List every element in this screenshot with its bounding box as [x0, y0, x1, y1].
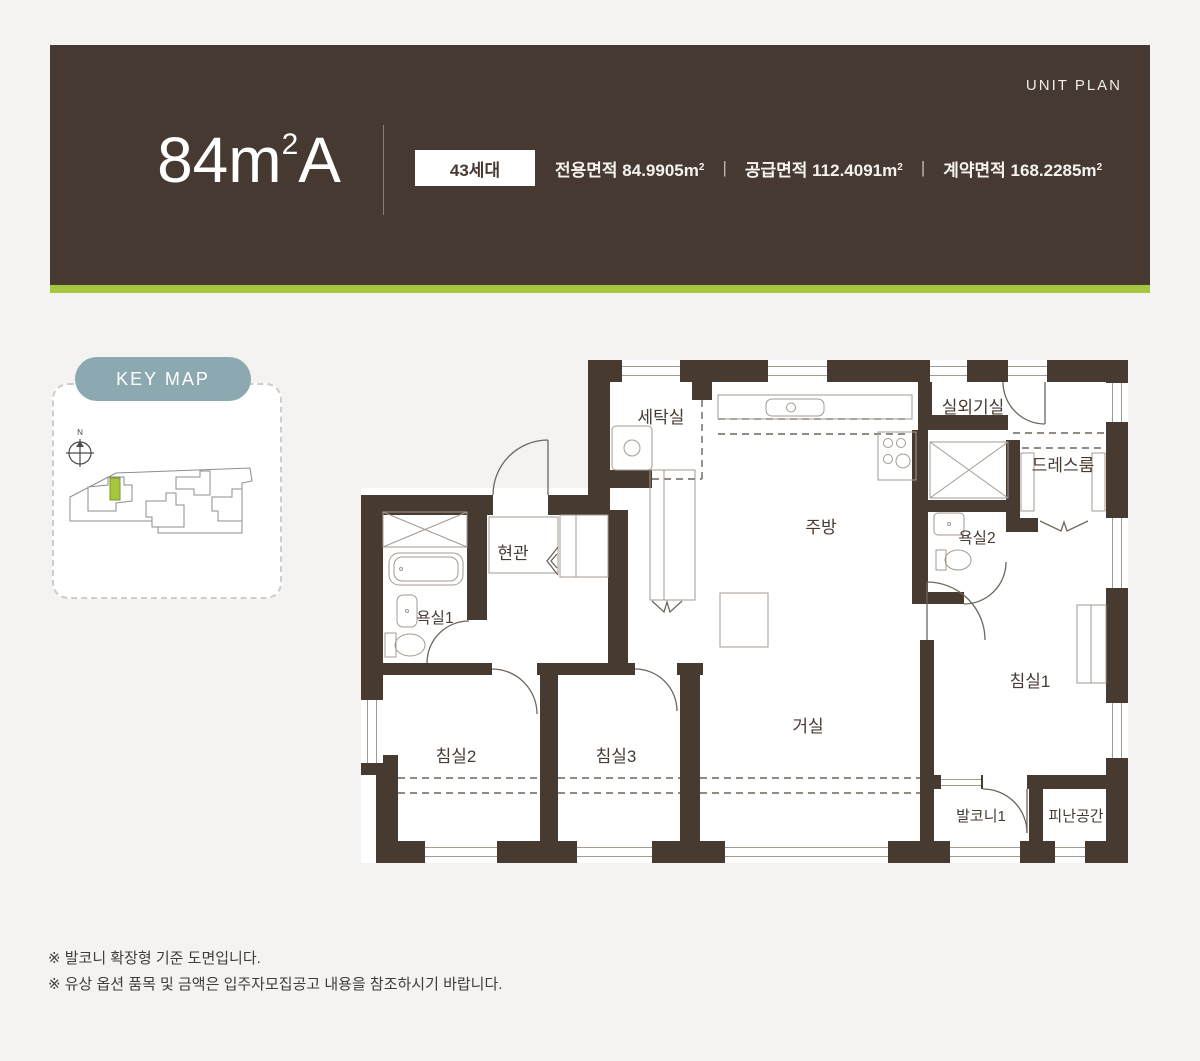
- room-label-dressroom: 드레스룸: [1032, 456, 1095, 475]
- unit-plan-label: UNIT PLAN: [1026, 77, 1122, 94]
- room-label-laundry: 세탁실: [638, 408, 685, 427]
- compass-n-label: N: [77, 428, 83, 437]
- room-label-refuge: 피난공간: [1048, 808, 1103, 825]
- accent-bar: [50, 285, 1150, 293]
- room-label-entrance: 현관: [497, 544, 528, 563]
- header-band: UNIT PLAN 84m2A 43세대 전용면적 84.9905m2 | 공급…: [50, 45, 1150, 285]
- compass-icon: [66, 439, 94, 467]
- room-label-living: 거실: [792, 717, 823, 736]
- room-label-outdoor-unit: 실외기실: [942, 398, 1005, 417]
- household-count-badge: 43세대: [415, 150, 535, 186]
- floorplan: 세탁실 주방 실외기실 드레스룸 욕실2 침실1 거실 현관 욕실1 침실2 침…: [361, 355, 1129, 867]
- room-label-bath2: 욕실2: [958, 529, 995, 547]
- footnote-line: ※ 유상 옵션 품목 및 금액은 입주자모집공고 내용을 참조하시기 바랍니다.: [48, 972, 502, 998]
- room-label-kitchen: 주방: [805, 518, 837, 537]
- area-item-supply: 공급면적 112.4091m2: [745, 156, 903, 181]
- room-label-bedroom1: 침실1: [1010, 672, 1051, 691]
- keymap-button[interactable]: KEY MAP: [75, 357, 251, 401]
- site-outline: [70, 468, 252, 533]
- area-info: 전용면적 84.9905m2 | 공급면적 112.4091m2 | 계약면적 …: [555, 150, 1102, 186]
- room-label-bath1: 욕실1: [416, 609, 453, 627]
- area-separator: |: [921, 158, 925, 178]
- area-item-contract: 계약면적 168.2285m2: [943, 156, 1102, 181]
- title-divider: [383, 125, 384, 215]
- room-label-balcony1: 발코니1: [956, 808, 1006, 825]
- room-label-bedroom3: 침실3: [596, 747, 637, 766]
- keymap-box: N: [52, 383, 282, 599]
- keymap-diagram: N: [54, 385, 276, 593]
- page-title: 84m2A: [114, 128, 384, 192]
- area-item-exclusive: 전용면적 84.9905m2: [555, 156, 704, 181]
- highlighted-unit: [110, 478, 120, 500]
- footnote-line: ※ 발코니 확장형 기준 도면입니다.: [48, 946, 502, 972]
- footnotes: ※ 발코니 확장형 기준 도면입니다. ※ 유상 옵션 품목 및 금액은 입주자…: [48, 946, 502, 997]
- room-label-bedroom2: 침실2: [436, 747, 477, 766]
- area-separator: |: [722, 158, 726, 178]
